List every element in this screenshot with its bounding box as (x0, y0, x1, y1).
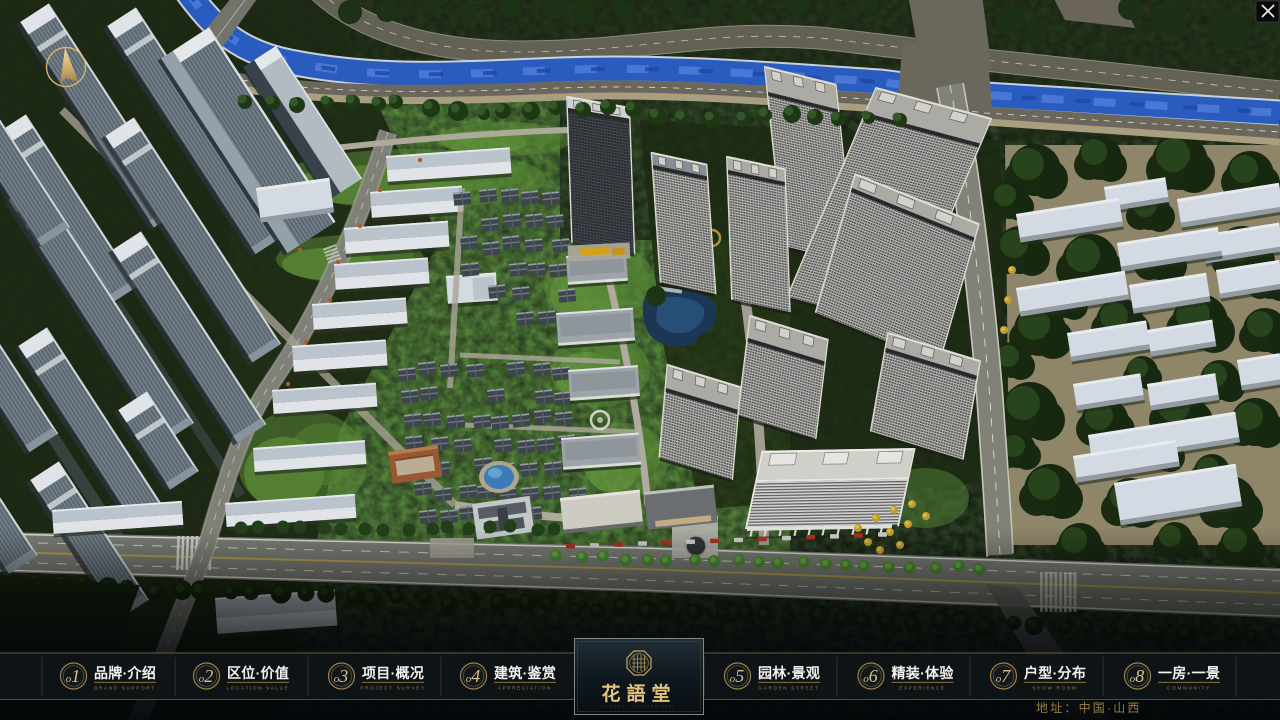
svg-text:区位·价值: 区位·价值 (227, 665, 289, 681)
svg-text:建筑·鉴赏: 建筑·鉴赏 (494, 665, 556, 681)
svg-text:花語堂: 花語堂 (601, 682, 676, 705)
svg-text:项目·概况: 项目·概况 (362, 665, 424, 681)
svg-text:地址：中国·山西: 地址：中国·山西 (1036, 700, 1142, 715)
svg-text:一房·一景: 一房·一景 (1158, 665, 1220, 681)
svg-text:园林·景观: 园林·景观 (758, 665, 820, 681)
svg-text:品牌·介绍: 品牌·介绍 (94, 665, 156, 681)
svg-text:PROJECT SURVEY: PROJECT SURVEY (360, 686, 425, 691)
svg-text:GARDEN STREET: GARDEN STREET (758, 686, 819, 691)
svg-text:户型·分布: 户型·分布 (1024, 665, 1086, 681)
svg-text:BRAND SUPPORT: BRAND SUPPORT (94, 686, 156, 691)
svg-text:APPRECIATION: APPRECIATION (498, 686, 552, 691)
svg-text:LOCATION VALUE: LOCATION VALUE (227, 686, 290, 691)
svg-text:COMMUNITY: COMMUNITY (1167, 686, 1211, 691)
svg-text:EXPERIENCE: EXPERIENCE (899, 686, 946, 691)
svg-text:FLOWER LANGUAGE HALL: FLOWER LANGUAGE HALL (602, 705, 675, 709)
svg-text:SHOW ROOM: SHOW ROOM (1032, 686, 1077, 691)
svg-text:精装·体验: 精装·体验 (892, 665, 955, 681)
